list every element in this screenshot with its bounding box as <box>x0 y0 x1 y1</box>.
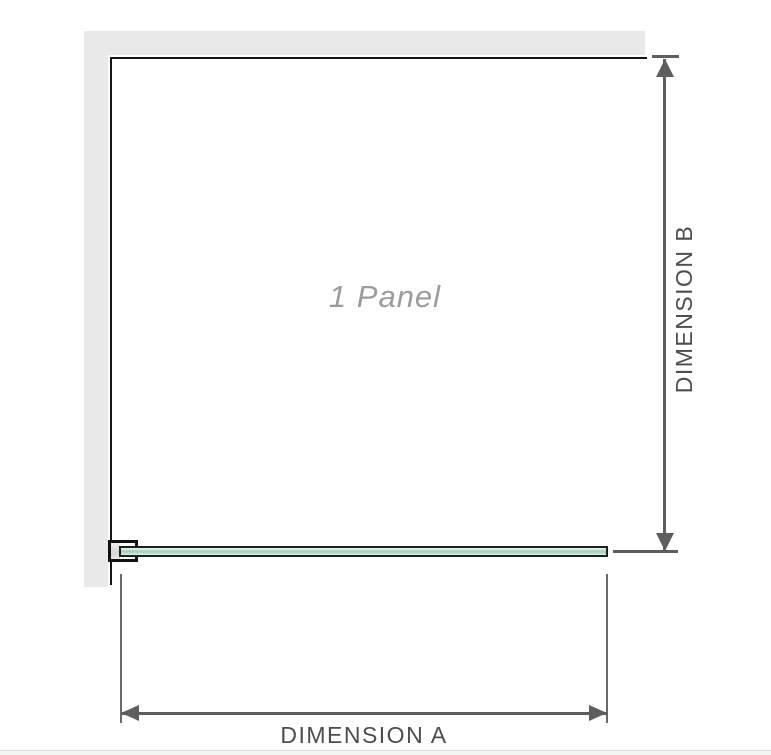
wall-top-strip <box>84 31 645 55</box>
glass-panel-bar <box>119 546 608 557</box>
dimension-b-tick-top <box>652 55 679 58</box>
panel-outline-left <box>110 57 112 585</box>
dimension-b-arrowhead-up <box>656 59 674 77</box>
dimension-b-arrowhead-down <box>656 533 674 551</box>
bottom-edge-strip <box>0 750 771 755</box>
dimension-a-arrowhead-left <box>121 705 139 721</box>
dimension-a-arrowhead-right <box>589 705 607 721</box>
dimension-a-line <box>122 712 607 715</box>
dimension-b-line <box>663 59 666 551</box>
dimension-a-extension-left <box>120 574 122 723</box>
panel-count-label: 1 Panel <box>285 279 485 315</box>
dimension-b-label: DIMENSION B <box>671 209 697 409</box>
wall-left-strip <box>84 31 108 587</box>
panel-outline-top <box>110 57 647 59</box>
diagram-canvas: 1 Panel DIMENSION B DIMENSION A <box>0 0 771 755</box>
dimension-a-extension-right <box>606 574 608 723</box>
dimension-a-label: DIMENSION A <box>214 722 514 749</box>
